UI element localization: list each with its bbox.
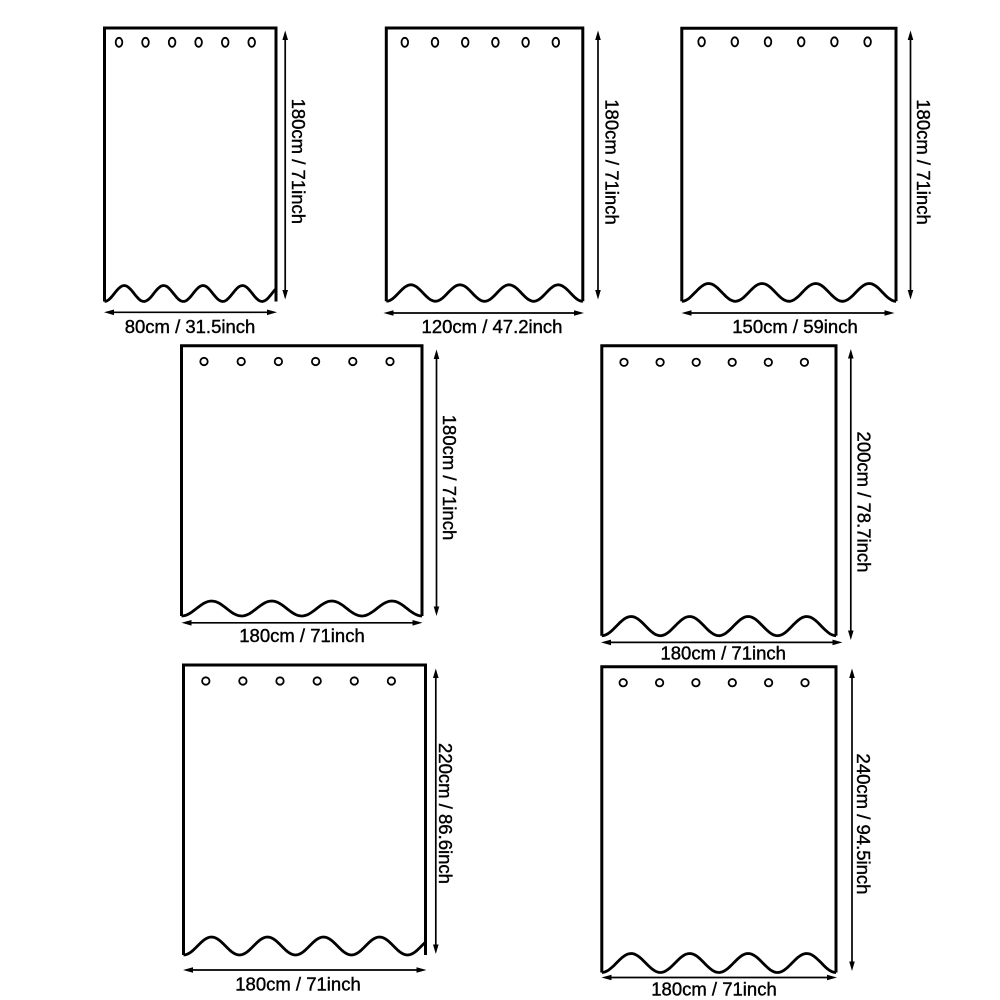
svg-text:120cm / 47.2inch: 120cm / 47.2inch	[422, 316, 563, 337]
svg-text:180cm / 71inch: 180cm / 71inch	[660, 643, 785, 664]
svg-text:180cm / 71inch: 180cm / 71inch	[602, 99, 623, 224]
svg-text:180cm / 71inch: 180cm / 71inch	[651, 979, 776, 1000]
svg-text:180cm / 71inch: 180cm / 71inch	[913, 99, 934, 224]
svg-text:240cm / 94.5inch: 240cm / 94.5inch	[853, 754, 874, 895]
svg-text:220cm / 86.6inch: 220cm / 86.6inch	[435, 743, 456, 884]
svg-text:180cm / 71inch: 180cm / 71inch	[439, 415, 460, 540]
svg-text:200cm / 78.7inch: 200cm / 78.7inch	[854, 432, 875, 573]
svg-text:80cm / 31.5inch: 80cm / 31.5inch	[125, 316, 256, 337]
svg-text:180cm / 71inch: 180cm / 71inch	[239, 625, 364, 646]
svg-text:180cm / 71inch: 180cm / 71inch	[235, 974, 360, 995]
svg-text:180cm / 71inch: 180cm / 71inch	[288, 99, 309, 224]
svg-text:150cm / 59inch: 150cm / 59inch	[732, 316, 857, 337]
